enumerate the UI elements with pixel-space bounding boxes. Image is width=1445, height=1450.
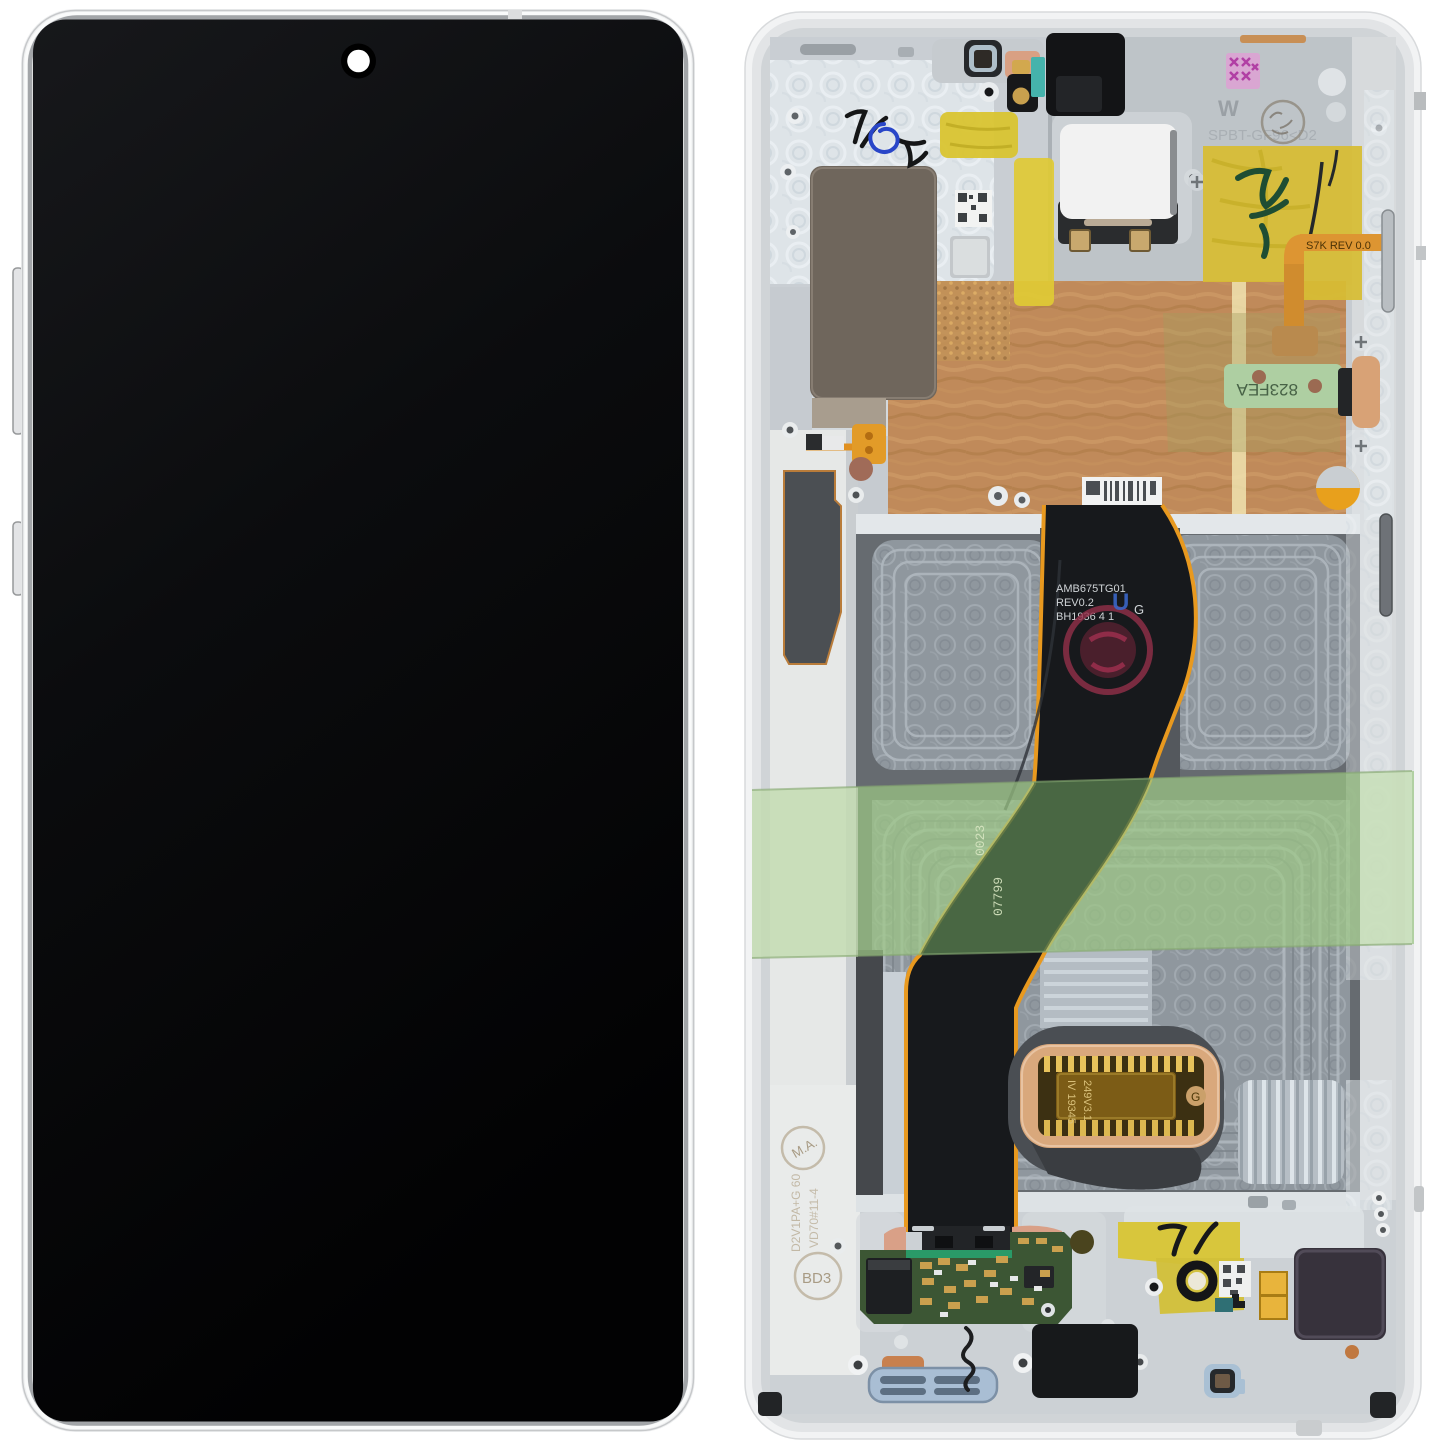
- svg-text:VD70#11-4: VD70#11-4: [807, 1188, 821, 1248]
- svg-text:BD3: BD3: [802, 1270, 831, 1287]
- svg-text:249V3.1: 249V3.1: [1081, 1080, 1093, 1121]
- svg-text:U: U: [1112, 589, 1129, 616]
- svg-text:0023: 0023: [973, 825, 988, 856]
- svg-text:W: W: [1218, 96, 1239, 121]
- svg-text:823FEA: 823FEA: [1236, 380, 1298, 399]
- svg-text:G: G: [1134, 602, 1144, 617]
- svg-text:G: G: [1191, 1090, 1200, 1104]
- svg-text:D2V1PA+G 60: D2V1PA+G 60: [789, 1174, 803, 1252]
- svg-text:07799: 07799: [991, 877, 1006, 916]
- svg-text:S7K REV 0.0: S7K REV 0.0: [1306, 240, 1371, 252]
- svg-text:IV 19345: IV 19345: [1065, 1080, 1077, 1124]
- svg-text:REV0.2: REV0.2: [1056, 597, 1094, 609]
